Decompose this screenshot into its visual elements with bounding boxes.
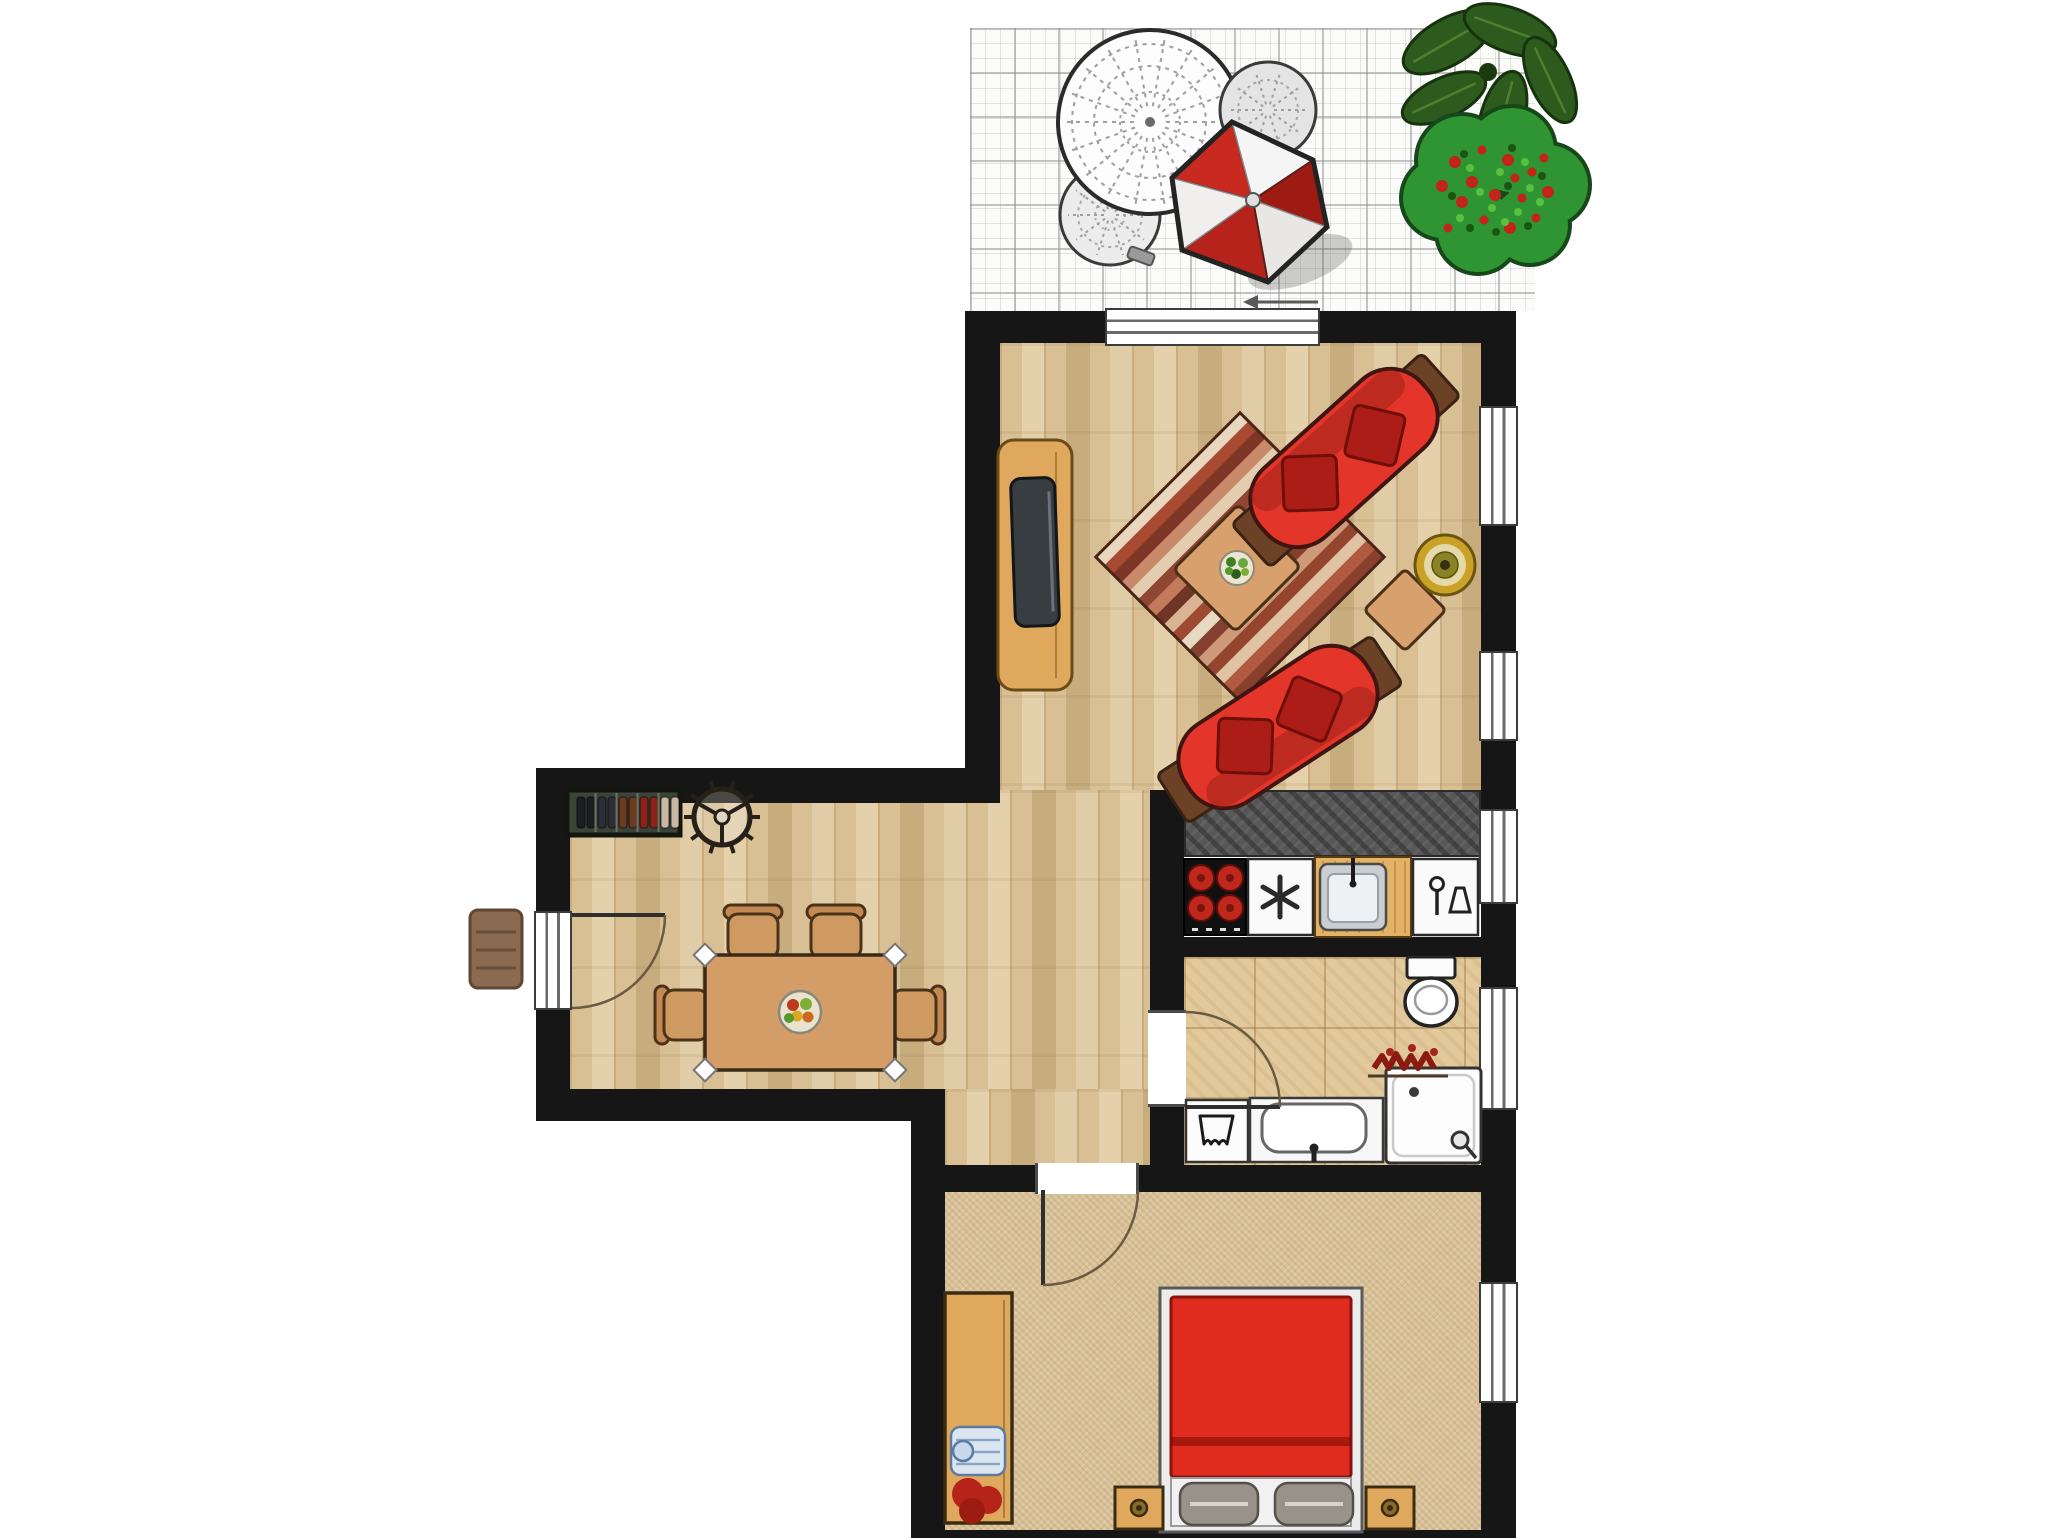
shoe bbox=[608, 797, 616, 828]
door-swing-arc bbox=[572, 915, 665, 1008]
bush-highlight bbox=[1466, 164, 1474, 172]
shoe bbox=[650, 797, 658, 828]
bush-highlight bbox=[1496, 168, 1504, 176]
rack-hook bbox=[691, 795, 700, 801]
lamp-center bbox=[1136, 1505, 1142, 1511]
clothes-roll bbox=[953, 1441, 973, 1461]
flower bbox=[1466, 176, 1478, 188]
door-swing-arc bbox=[1185, 1012, 1280, 1107]
dishwasher-body bbox=[1413, 859, 1478, 935]
flower bbox=[1528, 168, 1537, 177]
shoe bbox=[661, 797, 669, 828]
washing-machine[interactable] bbox=[1186, 1100, 1248, 1162]
bush-shade bbox=[1492, 228, 1500, 236]
pillow bbox=[1344, 404, 1406, 466]
washer-body bbox=[1186, 1100, 1248, 1162]
freezer[interactable] bbox=[1248, 859, 1313, 935]
flower bbox=[1511, 174, 1520, 183]
shoe bbox=[629, 797, 637, 828]
bush-shade bbox=[1460, 150, 1468, 158]
wardrobe[interactable] bbox=[945, 1293, 1012, 1524]
plant-bud bbox=[1430, 1048, 1438, 1056]
fruit bbox=[784, 1013, 794, 1023]
cooktop-knob bbox=[1234, 928, 1240, 931]
flower bbox=[1444, 224, 1453, 233]
lamp-center bbox=[1387, 1505, 1393, 1511]
red-clothes bbox=[959, 1498, 985, 1524]
shoe bbox=[598, 797, 606, 828]
cooktop-knob bbox=[1220, 928, 1226, 931]
toilet[interactable] bbox=[1405, 957, 1457, 1026]
plant-bud bbox=[1386, 1048, 1394, 1056]
basin-faucet-head bbox=[1310, 1144, 1319, 1153]
burner-center bbox=[1226, 874, 1234, 882]
chair-seat bbox=[728, 914, 778, 958]
bush-shade bbox=[1504, 182, 1512, 190]
kitchen-appliances bbox=[1184, 857, 1478, 937]
shoe bbox=[587, 797, 595, 828]
nightstand[interactable] bbox=[1115, 1487, 1163, 1529]
bush-shade bbox=[1524, 222, 1532, 230]
shoe bbox=[671, 797, 679, 828]
shower[interactable] bbox=[1386, 1068, 1481, 1163]
fruit bbox=[800, 998, 812, 1010]
rack-hook bbox=[691, 833, 700, 839]
shoe bbox=[640, 797, 648, 828]
chair-seat bbox=[811, 914, 861, 958]
dining-chair[interactable] bbox=[655, 986, 708, 1044]
nightstand[interactable] bbox=[1366, 1487, 1414, 1529]
bush-highlight bbox=[1488, 204, 1496, 212]
flower bbox=[1502, 154, 1514, 166]
bathroom-door[interactable] bbox=[1185, 1012, 1280, 1107]
flower bbox=[1478, 146, 1487, 155]
burner-center bbox=[1197, 904, 1205, 912]
chair-seat bbox=[892, 990, 936, 1040]
bush-highlight bbox=[1521, 158, 1529, 166]
bush-highlight bbox=[1526, 184, 1534, 192]
shower-head bbox=[1452, 1132, 1468, 1148]
parasol-hub bbox=[1246, 193, 1260, 207]
floor-plan bbox=[0, 0, 2048, 1538]
cooktop-knob bbox=[1192, 928, 1198, 931]
door-swing-arc bbox=[1043, 1190, 1138, 1285]
living-room-furniture bbox=[998, 338, 1475, 835]
flower bbox=[1436, 180, 1448, 192]
bathroom-fixtures bbox=[1185, 957, 1481, 1163]
flower bbox=[1480, 216, 1489, 225]
rack-hook bbox=[744, 795, 753, 801]
flower-bush[interactable] bbox=[1399, 104, 1592, 276]
shower-drain bbox=[1409, 1087, 1419, 1097]
dining-chair[interactable] bbox=[892, 986, 945, 1044]
dining-chair[interactable] bbox=[807, 905, 865, 958]
burner-center bbox=[1197, 874, 1205, 882]
plant-center bbox=[1479, 63, 1497, 81]
plant-leaf bbox=[1238, 558, 1248, 568]
bush-highlight bbox=[1456, 214, 1464, 222]
double-bed[interactable] bbox=[1160, 1288, 1362, 1532]
cooktop-knob bbox=[1206, 928, 1212, 931]
bush-highlight bbox=[1501, 218, 1509, 226]
flower bbox=[1489, 189, 1501, 201]
burner-center bbox=[1226, 904, 1234, 912]
flower bbox=[1449, 156, 1461, 168]
rack-hub bbox=[715, 810, 729, 824]
plant-bud bbox=[1408, 1044, 1416, 1052]
dining-set bbox=[655, 905, 945, 1081]
flower bbox=[1540, 154, 1549, 163]
flower bbox=[1532, 214, 1541, 223]
bedroom-furniture bbox=[945, 1190, 1414, 1532]
plant-leaves bbox=[1374, 1054, 1434, 1068]
tv[interactable] bbox=[1010, 477, 1059, 626]
table-center bbox=[1145, 117, 1155, 127]
table-plant[interactable] bbox=[1220, 551, 1254, 585]
pillow bbox=[1217, 718, 1273, 774]
fruit-bowl[interactable] bbox=[779, 991, 821, 1033]
terrace-furniture bbox=[1058, 0, 1592, 309]
chair-foot bbox=[1127, 246, 1156, 266]
plant-leaf bbox=[1225, 567, 1233, 575]
pot-center bbox=[1440, 560, 1450, 570]
potted-plant-gold[interactable] bbox=[1415, 535, 1475, 595]
faucet-head bbox=[1350, 881, 1357, 888]
chair-seat bbox=[664, 990, 708, 1040]
cooktop[interactable] bbox=[1184, 859, 1246, 935]
coat-rack[interactable] bbox=[684, 781, 760, 853]
toilet-tank bbox=[1407, 957, 1455, 978]
doormat[interactable] bbox=[470, 910, 522, 988]
pillow bbox=[1282, 455, 1338, 511]
blanket bbox=[1171, 1297, 1351, 1477]
shoe bbox=[619, 797, 627, 828]
bush-shade bbox=[1508, 144, 1516, 152]
dining-chair[interactable] bbox=[724, 905, 782, 958]
furniture-overlay bbox=[0, 0, 2048, 1538]
hallway-dining-furniture bbox=[470, 781, 945, 1081]
kitchen-sink[interactable] bbox=[1320, 858, 1386, 930]
bush-shade bbox=[1466, 224, 1474, 232]
rack-hook bbox=[744, 833, 753, 839]
bush-highlight bbox=[1536, 198, 1544, 206]
arrow-head bbox=[1243, 295, 1258, 309]
slide-direction-arrow bbox=[1243, 295, 1318, 309]
plant-pot bbox=[1220, 551, 1254, 585]
bush-shade bbox=[1448, 192, 1456, 200]
shoe bbox=[577, 797, 585, 828]
bush-highlight bbox=[1476, 188, 1484, 196]
entrance-door[interactable] bbox=[572, 915, 665, 1008]
flower bbox=[1456, 196, 1468, 208]
bush-highlight bbox=[1514, 208, 1522, 216]
bush-shade bbox=[1538, 172, 1546, 180]
bedroom-door[interactable] bbox=[1043, 1190, 1138, 1285]
flower bbox=[1518, 194, 1527, 203]
fruit bbox=[803, 1012, 814, 1023]
blanket-fold bbox=[1171, 1437, 1351, 1446]
plant-leaf bbox=[1226, 557, 1236, 567]
dishwasher[interactable] bbox=[1413, 859, 1478, 935]
shoe-rack[interactable] bbox=[567, 790, 680, 835]
fruit bbox=[787, 999, 799, 1011]
flower bbox=[1542, 186, 1554, 198]
plant-leaf bbox=[1241, 568, 1249, 576]
